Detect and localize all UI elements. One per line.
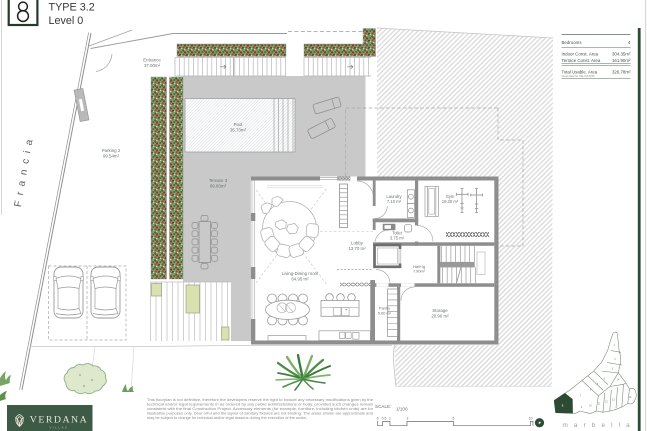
svg-text:1: 1	[389, 417, 391, 421]
svg-text:Living-Dining room: Living-Dining room	[282, 271, 319, 276]
svg-text:illustrative purposes only. Do: illustrative purposes only. Door orful a…	[147, 412, 373, 416]
svg-text:5: 5	[452, 417, 454, 421]
svg-text:7.10 m²: 7.10 m²	[387, 199, 402, 204]
svg-text:20.90 m²: 20.90 m²	[431, 314, 449, 319]
svg-text:SCALE:: SCALE:	[375, 404, 391, 409]
svg-text:Gross Area for Use 3.8.2010: Gross Area for Use 3.8.2010	[562, 74, 595, 78]
svg-text:Indoor Const. Area: Indoor Const. Area	[562, 52, 599, 57]
svg-text:VILLAS: VILLAS	[49, 425, 68, 429]
svg-text:326.78m²: 326.78m²	[612, 70, 631, 75]
svg-text:0: 0	[377, 417, 379, 421]
svg-text:10: 10	[529, 417, 533, 421]
svg-text:consistent with the final Cons: consistent with the final Construction P…	[147, 407, 374, 411]
svg-text:1/100: 1/100	[396, 407, 408, 412]
svg-text:13.70 m²: 13.70 m²	[348, 246, 366, 251]
svg-text:may be subject to change for t: may be subject to change for technical a…	[147, 416, 307, 420]
svg-text:2: 2	[406, 417, 408, 421]
svg-text:304.35m²: 304.35m²	[612, 52, 631, 57]
svg-text:Terrace Const. Area: Terrace Const. Area	[562, 58, 601, 63]
svg-text:VERDANA: VERDANA	[30, 415, 88, 426]
svg-text:Terrace 3: Terrace 3	[209, 178, 228, 183]
svg-text:Lobby: Lobby	[351, 241, 364, 246]
svg-text:Total Usable. Area: Total Usable. Area	[562, 70, 598, 75]
svg-text:19.30 m²: 19.30 m²	[442, 199, 459, 204]
svg-text:99.54m²: 99.54m²	[103, 154, 120, 159]
svg-text:Parking 2: Parking 2	[102, 148, 121, 153]
svg-text:161.90m²: 161.90m²	[612, 58, 631, 63]
svg-text:This floorplan is not definiti: This floorplan is not definitive, theref…	[147, 398, 373, 402]
svg-text:Level 0: Level 0	[49, 15, 84, 27]
svg-text:64.95 m²: 64.95 m²	[291, 277, 309, 282]
svg-text:7.90m²: 7.90m²	[413, 269, 426, 274]
svg-text:5.60 m²: 5.60 m²	[378, 310, 392, 315]
svg-text:marbella: marbella	[563, 422, 636, 429]
svg-text:89.80m²: 89.80m²	[210, 184, 227, 189]
svg-text:37.00m²: 37.00m²	[144, 63, 161, 68]
svg-text:Entrance: Entrance	[143, 58, 161, 63]
svg-text:Pool: Pool	[234, 122, 243, 127]
svg-text:0.5: 0.5	[382, 417, 387, 421]
svg-text:Storage: Storage	[432, 308, 448, 313]
svg-text:TYPE 3.2: TYPE 3.2	[49, 2, 95, 14]
svg-text:technical and/or legal require: technical and/or legal requirements in a…	[147, 403, 373, 407]
svg-text:Bedrooms: Bedrooms	[562, 40, 583, 45]
svg-text:35.70m²: 35.70m²	[230, 128, 247, 133]
svg-text:3.75 m²: 3.75 m²	[390, 236, 405, 241]
